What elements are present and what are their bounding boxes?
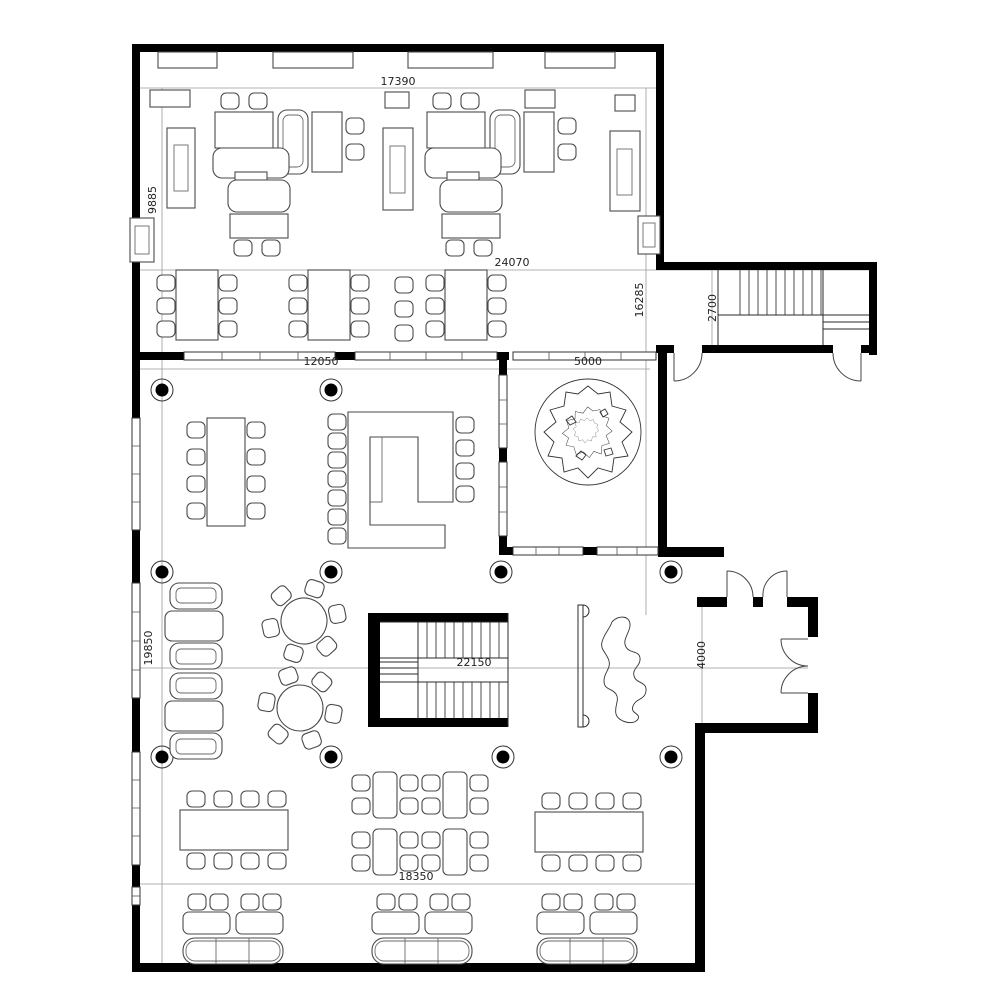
sofa-group-2	[165, 673, 223, 759]
loose-chairs-row	[395, 277, 413, 341]
floor-plan-page: 17390 9885 24070 16285 2700 5000 12050 1…	[0, 0, 1000, 1000]
tall-cabinet-1	[167, 128, 195, 208]
six-seat-table-3	[426, 270, 506, 340]
left-wall-windows	[132, 418, 140, 905]
dimension-central-width: 22150	[457, 656, 492, 669]
sofa-group-1	[165, 583, 223, 669]
dimension-stair-corridor-width: 2700	[706, 294, 719, 322]
floor-plan-canvas: 17390 9885 24070 16285 2700 5000 12050 1…	[0, 0, 1000, 1000]
six-seat-table-2	[289, 270, 369, 340]
dimension-upper-left-height: 9885	[146, 186, 159, 214]
six-seat-table-1	[157, 270, 237, 340]
tall-cabinet-3	[610, 131, 640, 211]
dimension-courtyard-width: 5000	[574, 355, 602, 368]
dimension-lower-left-height: 19850	[142, 631, 155, 666]
dimension-meeting-room-width: 12050	[304, 355, 339, 368]
wall-niche-right	[638, 216, 660, 254]
dimension-upper-right-height: 16285	[633, 283, 646, 318]
dimension-dining-width: 18350	[399, 870, 434, 883]
dimension-middle-width: 24070	[495, 256, 530, 269]
dimension-top-width: 17390	[381, 75, 416, 88]
tall-cabinet-2	[383, 128, 413, 210]
dimension-entrance-height: 4000	[695, 641, 708, 669]
wall-niche-left	[130, 218, 154, 262]
